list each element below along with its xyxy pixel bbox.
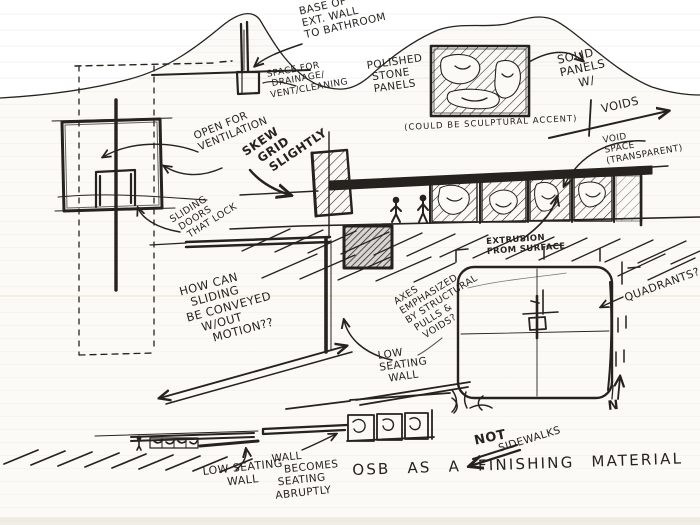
- site-plan-sketch: [452, 245, 640, 412]
- arrow-ventilation-2: [164, 166, 222, 175]
- label-north: N: [607, 398, 620, 414]
- figure-1: [391, 198, 401, 222]
- w-slash-stroke: [589, 100, 591, 136]
- sketch-page: BASE OF EXT. WALL TO BATHROOM SPACE FOR …: [0, 0, 700, 525]
- bottom-middle-elevation: [263, 393, 450, 450]
- label-polished-stone: POLISHED STONE PANELS: [366, 52, 427, 96]
- figure-2: [418, 196, 428, 222]
- sliding-motion-arrows: [160, 346, 352, 404]
- label-low-seating-wall-plan: LOW SEATING WALL: [377, 343, 430, 386]
- north-arrow: [612, 377, 620, 399]
- bottom-scan-band: [0, 517, 700, 525]
- small-figure: [137, 436, 141, 450]
- label-wall-becomes: WALL BECOMES SEATING ABRUPTLY: [271, 446, 342, 501]
